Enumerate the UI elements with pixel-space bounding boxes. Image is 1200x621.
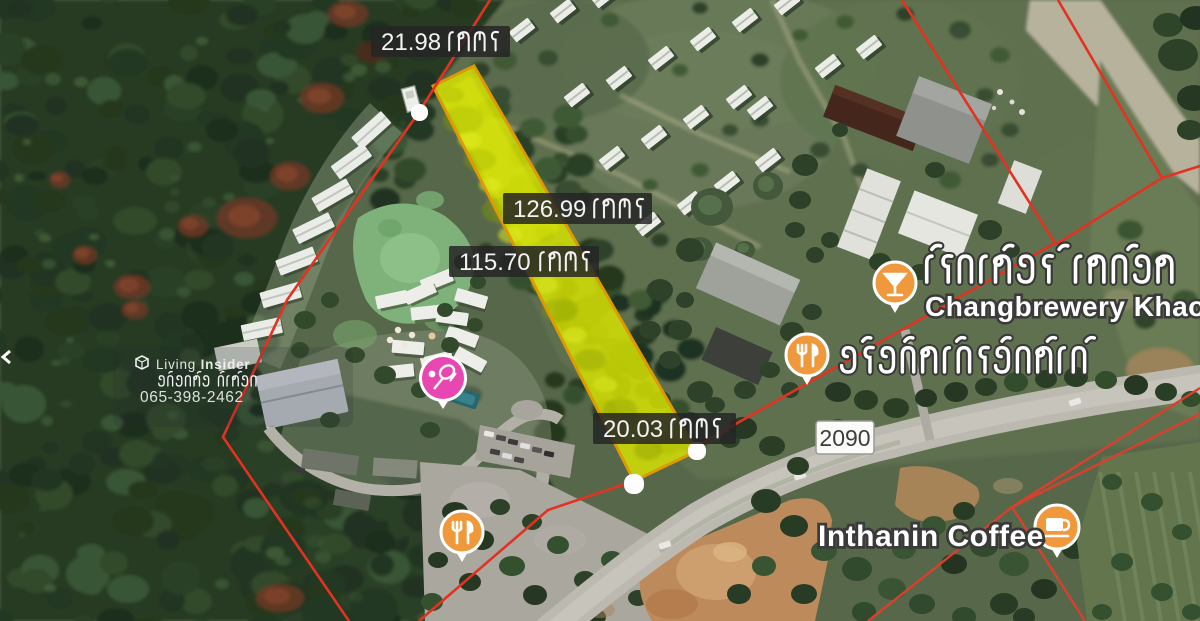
svg-text:115.70: 115.70 <box>459 249 531 276</box>
svg-text:Changbrewery Khao: Changbrewery Khao <box>925 291 1200 322</box>
svg-text:Inthanin Coffee: Inthanin Coffee <box>818 520 1044 553</box>
svg-text:126.99: 126.99 <box>513 196 586 223</box>
svg-text:20.03: 20.03 <box>603 416 663 443</box>
svg-text:Living Insider: Living Insider <box>156 357 251 372</box>
svg-text:065-398-2462: 065-398-2462 <box>140 389 244 406</box>
svg-text:21.98: 21.98 <box>381 29 441 56</box>
svg-text:2090: 2090 <box>819 425 870 451</box>
